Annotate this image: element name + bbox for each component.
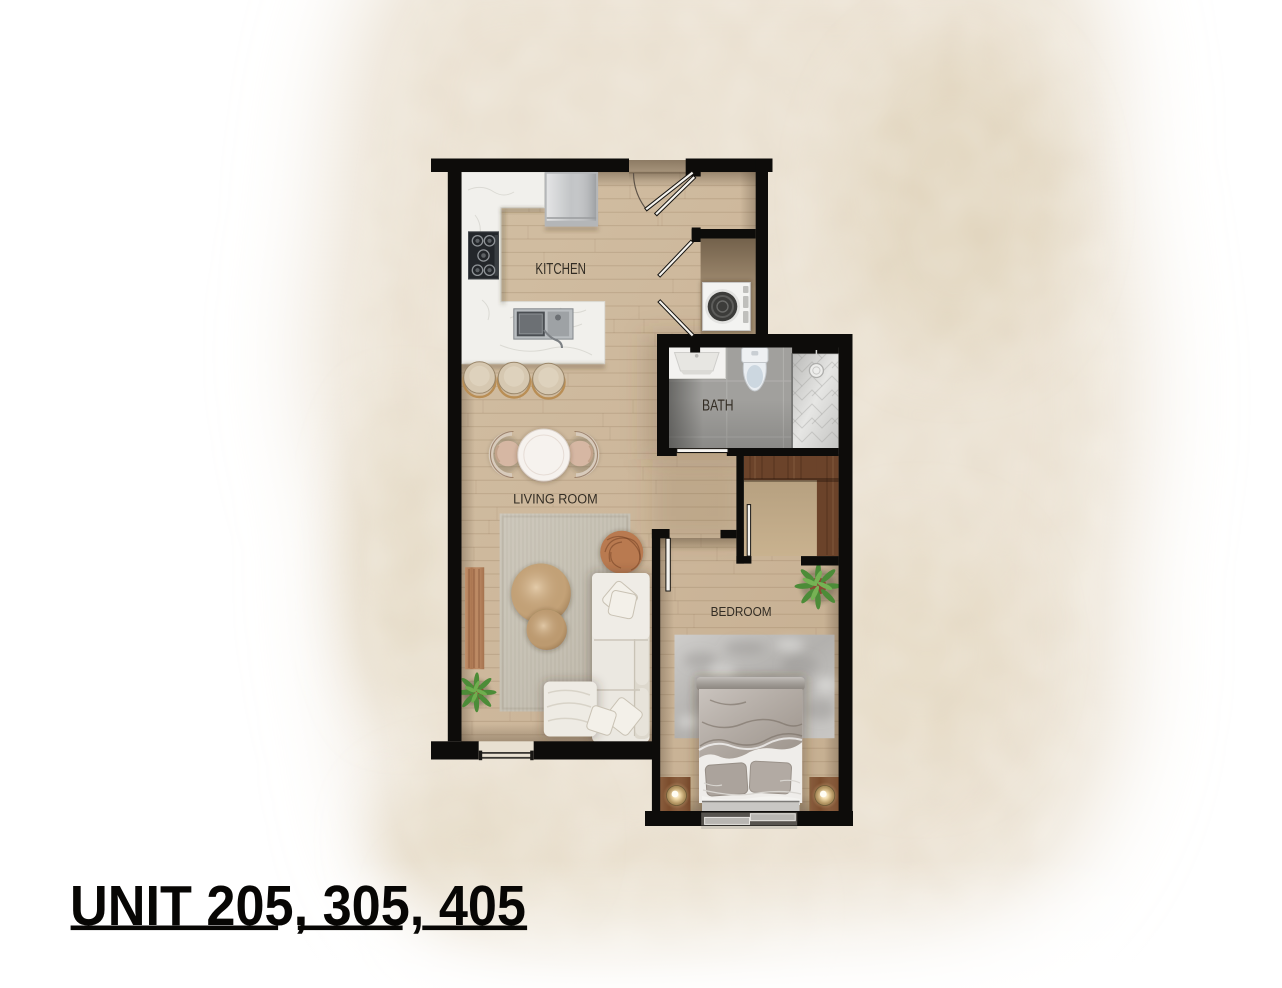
svg-text:KITCHEN: KITCHEN xyxy=(535,261,586,278)
svg-text:BATH: BATH xyxy=(702,398,734,415)
svg-text:LIVING ROOM: LIVING ROOM xyxy=(513,492,598,507)
svg-text:BEDROOM: BEDROOM xyxy=(711,605,772,619)
